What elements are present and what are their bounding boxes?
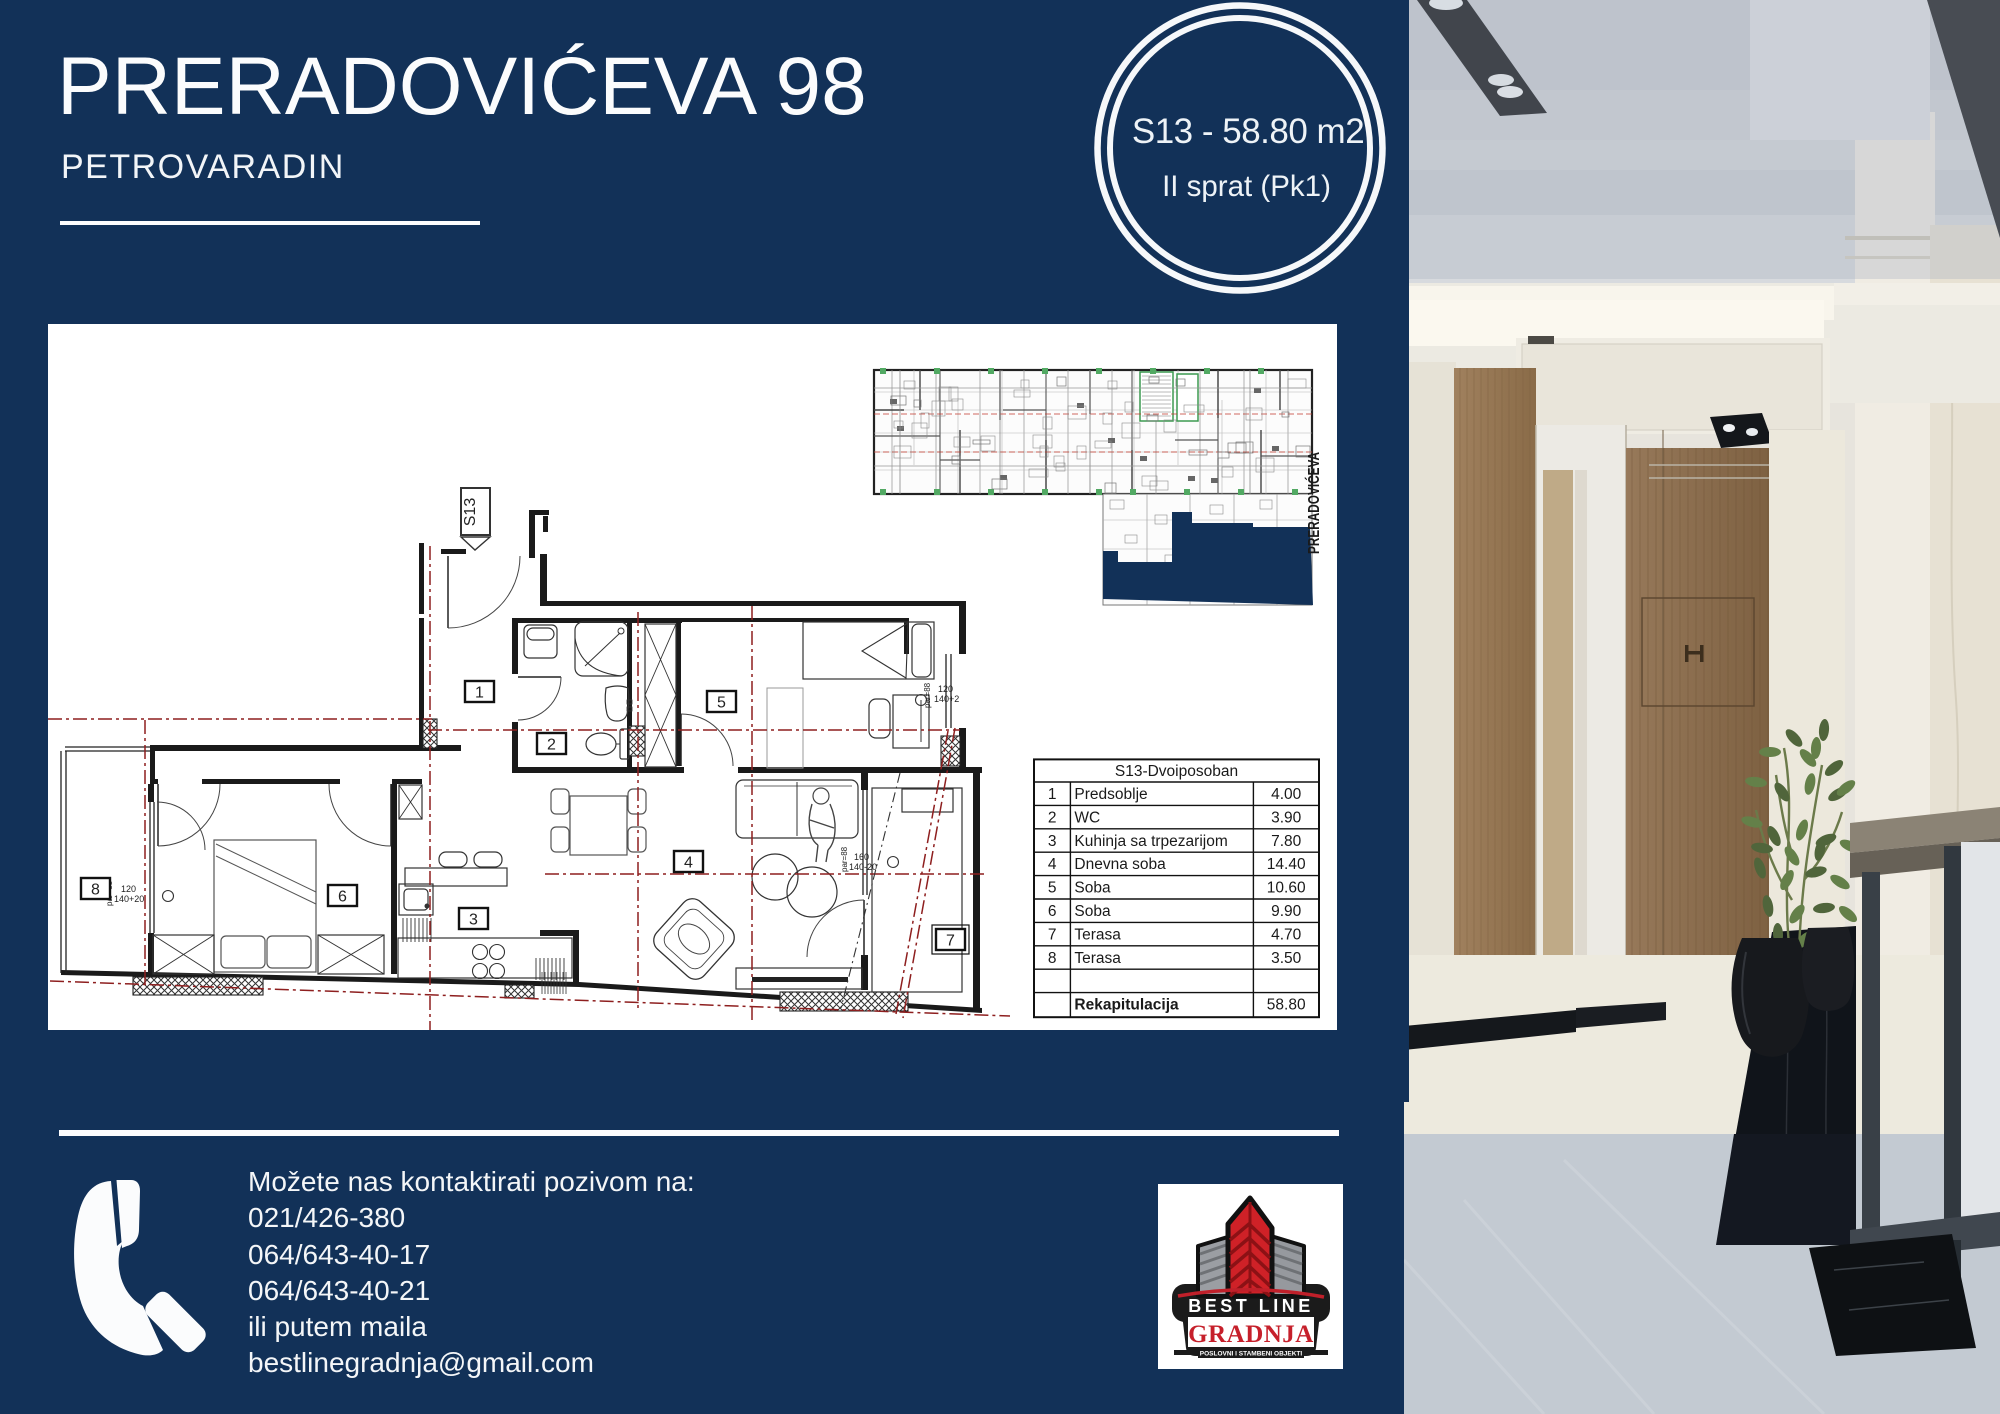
svg-text:4: 4	[684, 855, 693, 872]
svg-text:par=88: par=88	[923, 682, 932, 708]
svg-text:1: 1	[1048, 786, 1057, 803]
svg-text:S13-Dvoiposoban: S13-Dvoiposoban	[1115, 763, 1238, 780]
svg-text:1: 1	[475, 685, 484, 702]
svg-text:3.90: 3.90	[1271, 809, 1302, 826]
svg-text:6: 6	[1048, 903, 1057, 920]
svg-text:14.40: 14.40	[1267, 856, 1306, 873]
svg-text:PRERADOVIĆEVA: PRERADOVIĆEVA	[1304, 452, 1323, 554]
svg-text:par=88: par=88	[840, 846, 849, 872]
svg-text:BEST LINE: BEST LINE	[1188, 1296, 1314, 1316]
svg-text:5: 5	[717, 695, 726, 712]
svg-text:Terasa: Terasa	[1074, 926, 1121, 943]
svg-text:120: 120	[938, 684, 953, 694]
svg-text:7.80: 7.80	[1271, 833, 1302, 850]
svg-text:10.60: 10.60	[1267, 880, 1306, 897]
svg-text:4.00: 4.00	[1271, 786, 1302, 803]
svg-text:3: 3	[1048, 833, 1057, 850]
svg-text:2: 2	[1048, 809, 1057, 826]
svg-text:Soba: Soba	[1074, 903, 1111, 920]
svg-text:WC: WC	[1074, 809, 1100, 826]
svg-text:7: 7	[946, 933, 955, 950]
svg-text:7: 7	[1048, 926, 1057, 943]
svg-text:3.50: 3.50	[1271, 950, 1302, 967]
svg-text:Rekapitulacija: Rekapitulacija	[1074, 997, 1179, 1014]
svg-text:Terasa: Terasa	[1074, 950, 1121, 967]
svg-text:8: 8	[1048, 950, 1057, 967]
svg-text:2: 2	[547, 737, 556, 754]
svg-text:140+2: 140+2	[934, 694, 959, 704]
svg-text:9.90: 9.90	[1271, 903, 1302, 920]
svg-text:160: 160	[854, 852, 869, 862]
svg-text:3: 3	[469, 912, 478, 929]
svg-text:Kuhinja sa trpezarijom: Kuhinja sa trpezarijom	[1074, 833, 1227, 850]
svg-text:140+20: 140+20	[114, 894, 144, 904]
svg-text:POSLOVNI I STAMBENI OBJEKTI: POSLOVNI I STAMBENI OBJEKTI	[1200, 1351, 1303, 1358]
svg-text:Predsoblje: Predsoblje	[1074, 786, 1147, 803]
svg-text:Dnevna soba: Dnevna soba	[1074, 856, 1166, 873]
svg-text:Soba: Soba	[1074, 880, 1111, 897]
svg-text:S13: S13	[462, 498, 479, 527]
svg-text:58.80: 58.80	[1267, 997, 1306, 1014]
svg-text:140-20: 140-20	[849, 862, 877, 872]
svg-text:120: 120	[121, 884, 136, 894]
svg-text:GRADNJA: GRADNJA	[1188, 1321, 1314, 1348]
svg-text:4: 4	[1048, 856, 1057, 873]
svg-text:8: 8	[91, 882, 100, 899]
svg-text:6: 6	[338, 889, 347, 906]
svg-text:4.70: 4.70	[1271, 926, 1302, 943]
svg-text:5: 5	[1048, 880, 1057, 897]
